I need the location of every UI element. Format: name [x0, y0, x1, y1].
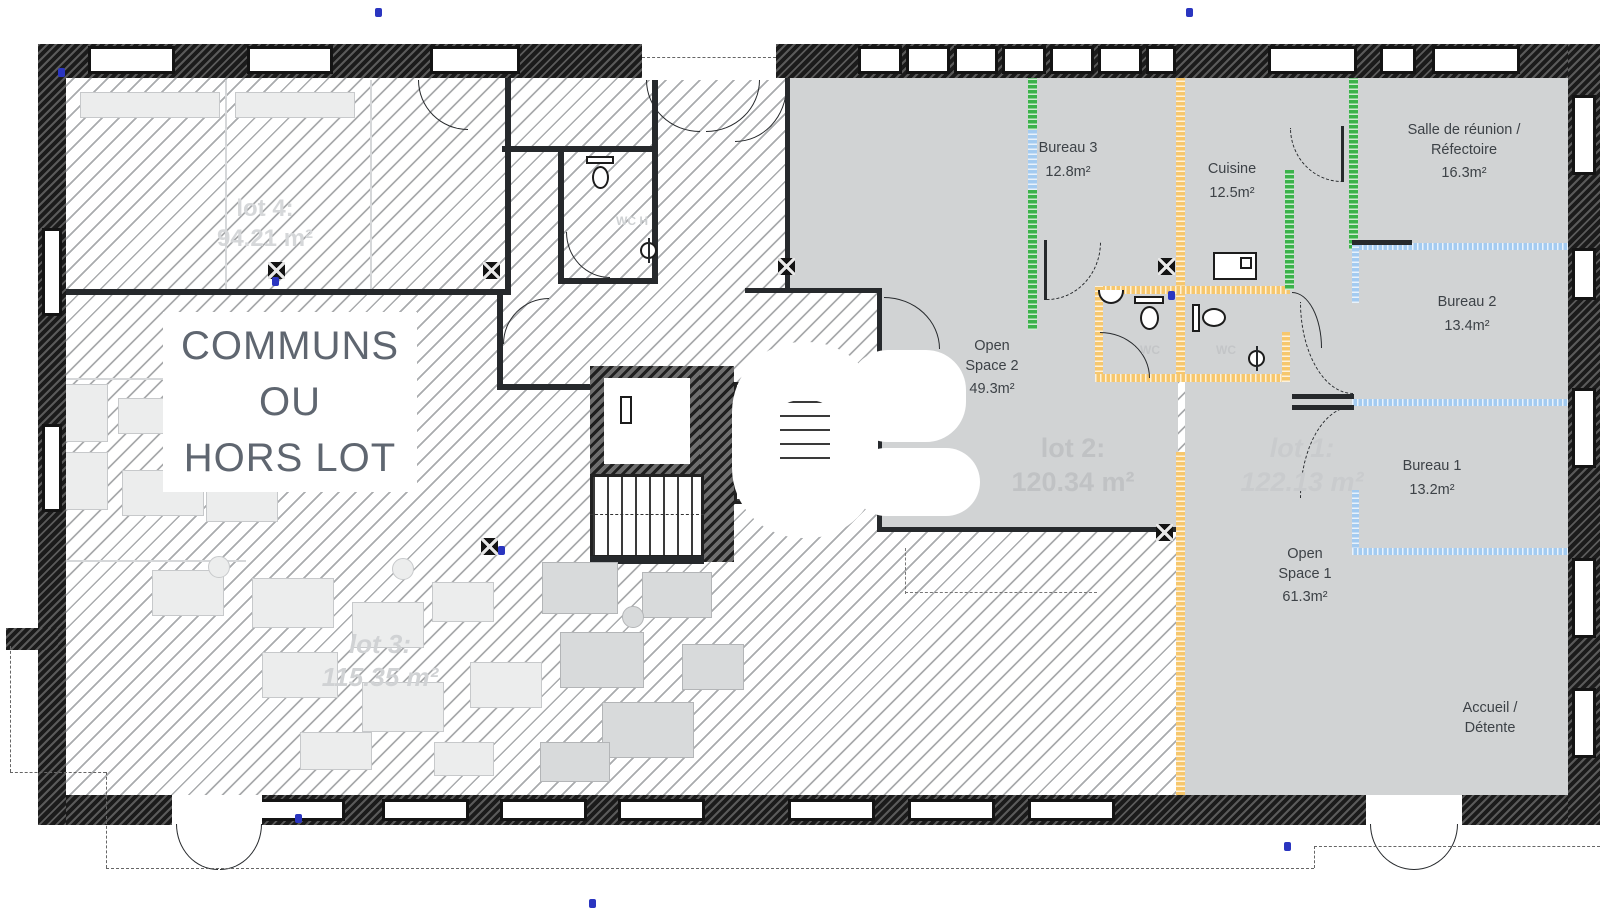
window — [500, 799, 587, 821]
wc-h-label: WC H — [616, 214, 648, 228]
furniture — [64, 452, 108, 510]
wall-segment — [1352, 240, 1412, 245]
partition-line — [370, 80, 372, 289]
survey-marker — [1168, 291, 1175, 300]
room-area: 49.3m² — [965, 380, 1018, 400]
wall-segment — [877, 527, 1180, 532]
room-name: Open — [965, 337, 1018, 357]
window — [1028, 799, 1115, 821]
core-wall — [700, 366, 734, 562]
entrance-opening-left — [172, 795, 262, 825]
exterior-wall-pier — [6, 628, 58, 650]
furniture — [470, 662, 542, 708]
green-partition-bureau3-lower — [1028, 190, 1037, 330]
room-area: 16.3m² — [1408, 164, 1521, 184]
furniture — [642, 572, 712, 618]
room-label-salle-reunion: Salle de réunion / Réfectoire 16.3m² — [1408, 121, 1521, 184]
partition-line — [225, 80, 227, 289]
survey-marker — [589, 899, 596, 908]
window — [247, 46, 333, 74]
yellow-partition-wc-top — [1095, 286, 1290, 294]
furniture — [682, 644, 744, 690]
door-arc — [1370, 824, 1414, 870]
room-label-open-space1: Open Space 1 61.3m² — [1278, 545, 1331, 608]
room-area: 12.8m² — [1039, 163, 1098, 183]
room-label-open-space2: Open Space 2 49.3m² — [965, 337, 1018, 400]
lot-number: lot 4: — [217, 194, 313, 224]
toilet-bowl — [1202, 308, 1226, 327]
green-partition-cuisine — [1285, 170, 1294, 290]
room-label-bureau3: Bureau 3 12.8m² — [1039, 139, 1098, 182]
chair — [392, 558, 414, 580]
furniture — [560, 632, 644, 688]
room-name-line2: Détente — [1463, 719, 1518, 739]
floor-plan: COMMUNS OU HORS LOT Bureau 3 12.8m² Cuis… — [0, 0, 1600, 910]
door-leaf — [1292, 394, 1354, 399]
furniture — [300, 732, 372, 770]
toilet-tank — [1134, 296, 1164, 304]
room-name-line2: Réfectoire — [1408, 141, 1521, 161]
hand-basin-tap — [1256, 346, 1258, 371]
window — [1572, 388, 1596, 468]
window — [618, 799, 705, 821]
furniture — [235, 92, 355, 118]
staircase-lower — [590, 474, 704, 558]
room-name: Accueil / — [1463, 699, 1518, 719]
toilet-bowl — [592, 166, 609, 189]
toilet-bowl — [1140, 306, 1159, 330]
terrace-outline-dashed — [10, 772, 106, 773]
survey-marker — [498, 546, 505, 555]
window — [954, 46, 998, 74]
window — [908, 799, 995, 821]
lot-number: lot 1: — [1240, 432, 1363, 466]
lot-area: 115.35 m² — [322, 661, 439, 694]
window — [382, 799, 469, 821]
communs-label-box: COMMUNS OU HORS LOT — [163, 312, 417, 492]
room-name: Bureau 3 — [1039, 139, 1098, 159]
room-name: Bureau 1 — [1403, 457, 1462, 477]
room-label-cuisine: Cuisine 12.5m² — [1208, 160, 1256, 203]
furniture — [542, 562, 618, 614]
lot2-label: lot 2: 120.34 m² — [1011, 432, 1134, 500]
wall-segment — [502, 146, 658, 152]
window — [1432, 46, 1520, 74]
green-partition-bureau3-upper — [1028, 74, 1037, 130]
window — [906, 46, 950, 74]
wc-label-right: WC — [1216, 343, 1236, 357]
blue-partition-bureau3-window — [1028, 130, 1037, 190]
window — [1146, 46, 1176, 74]
kitchen-appliance-detail — [1240, 257, 1252, 269]
blue-partition-bureau-divider — [1352, 399, 1570, 406]
window — [1268, 46, 1357, 74]
window — [1050, 46, 1094, 74]
room-label-bureau2: Bureau 2 13.4m² — [1438, 293, 1497, 336]
furniture — [64, 384, 108, 442]
blue-partition-bureau1-bottom — [1352, 548, 1570, 555]
room-name-line2: Space 2 — [965, 357, 1018, 377]
blue-partition-left-upper — [1352, 243, 1359, 303]
wall-segment — [505, 78, 511, 295]
terrace-outline-dashed — [106, 868, 1314, 869]
door-arc — [176, 824, 218, 870]
survey-marker — [1186, 8, 1193, 17]
yellow-partition-wc-right — [1282, 332, 1290, 382]
room-name-line2: Space 1 — [1278, 565, 1331, 585]
lot-area: 122.13 m² — [1240, 466, 1363, 500]
lot-number: lot 3: — [322, 628, 439, 661]
lot2-area-upper — [790, 78, 1178, 292]
furniture — [434, 742, 494, 776]
lot-area: 120.34 m² — [1011, 466, 1134, 500]
column-marker — [481, 538, 498, 555]
communs-line3: HORS LOT — [184, 430, 396, 486]
window — [1002, 46, 1046, 74]
room-name: Bureau 2 — [1438, 293, 1497, 313]
survey-marker — [58, 68, 65, 77]
lot4-label: lot 4: 94.21 m² — [217, 194, 313, 254]
door-arc — [1414, 824, 1458, 870]
furniture — [252, 578, 334, 628]
window — [430, 46, 520, 74]
proposed-partition-dashed — [905, 548, 906, 594]
blue-partition-left-lower — [1352, 490, 1359, 554]
room-area: 13.2m² — [1403, 481, 1462, 501]
window — [1572, 95, 1596, 175]
terrace-outline-dashed — [10, 646, 11, 772]
lot-number: lot 2: — [1011, 432, 1134, 466]
room-label-bureau1: Bureau 1 13.2m² — [1403, 457, 1462, 500]
entrance-opening-right — [1366, 795, 1462, 825]
wall-segment — [745, 288, 882, 293]
room-name: Salle de réunion / — [1408, 121, 1521, 141]
window — [42, 424, 62, 512]
window — [42, 228, 62, 316]
window — [788, 799, 875, 821]
window — [1572, 688, 1596, 758]
chair — [622, 606, 644, 628]
survey-marker — [272, 277, 279, 286]
elevator-symbol — [620, 396, 632, 424]
column-marker — [483, 262, 500, 279]
lot3-label: lot 3: 115.35 m² — [322, 628, 439, 693]
survey-marker — [1284, 842, 1291, 851]
yellow-partition-lot-divider-upper — [1176, 78, 1185, 382]
watermark-shape — [852, 448, 980, 516]
green-partition-salle — [1349, 74, 1358, 250]
toilet-tank — [1192, 304, 1200, 332]
terrace-outline-dashed — [106, 772, 107, 868]
watermark-shape — [848, 350, 966, 442]
hand-basin-tap — [648, 238, 650, 263]
room-area: 12.5m² — [1208, 184, 1256, 204]
threshold-dashed-line — [642, 57, 776, 58]
room-name: Cuisine — [1208, 160, 1256, 180]
communs-line2: OU — [259, 374, 321, 430]
terrace-outline-dashed — [1314, 846, 1315, 868]
room-label-accueil: Accueil / Détente — [1463, 699, 1518, 738]
wall-segment — [558, 278, 658, 284]
wall-segment — [66, 289, 507, 295]
column-marker — [1158, 258, 1175, 275]
lot1-label: lot 1: 122.13 m² — [1240, 432, 1363, 500]
window — [88, 46, 175, 74]
wc-label-left: WC — [1140, 343, 1160, 357]
window — [1380, 46, 1416, 74]
window — [1572, 558, 1596, 638]
room-area: 61.3m² — [1278, 588, 1331, 608]
yellow-partition-lot-divider-lower — [1176, 452, 1185, 797]
toilet-tank — [586, 156, 614, 164]
communs-line1: COMMUNS — [181, 318, 399, 374]
survey-marker — [295, 814, 302, 823]
window — [1098, 46, 1142, 74]
room-name: Open — [1278, 545, 1331, 565]
entrance-recess-top — [642, 44, 776, 80]
window — [1572, 248, 1596, 300]
wall-segment — [497, 384, 599, 390]
lot-area: 94.21 m² — [217, 224, 313, 254]
door-arc — [220, 824, 262, 870]
furniture — [432, 582, 494, 622]
furniture — [602, 702, 694, 758]
window — [858, 46, 902, 74]
chair — [208, 556, 230, 578]
elevator-cab — [604, 378, 690, 464]
survey-marker — [375, 8, 382, 17]
room-area: 13.4m² — [1438, 317, 1497, 337]
furniture — [80, 92, 220, 118]
furniture — [540, 742, 610, 782]
column-marker — [778, 258, 795, 275]
terrace-outline-dashed — [1314, 846, 1600, 847]
proposed-partition-dashed — [905, 592, 1097, 593]
stair-centerline — [590, 514, 704, 515]
column-marker — [1156, 524, 1173, 541]
wall-segment — [558, 146, 564, 284]
